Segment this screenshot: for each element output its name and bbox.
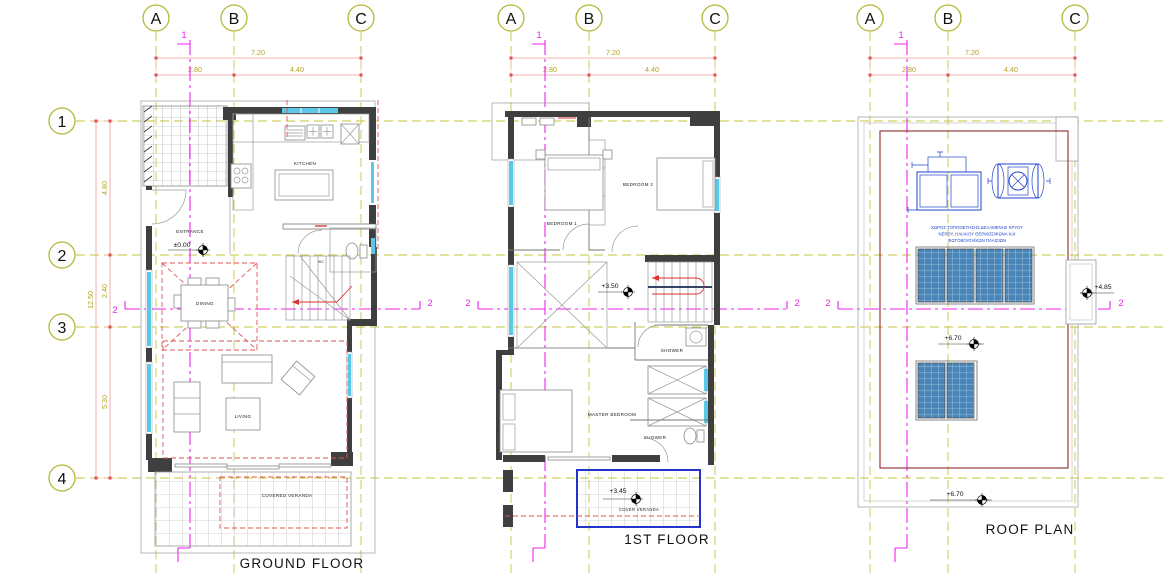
covered-veranda-label: COVERED VERANDA [262,493,313,498]
col-marker-c3: C [1062,5,1088,31]
bedroom1-area: BEDROOM 1 [536,150,612,226]
solar-panel-array-lower [916,361,977,420]
entrance-label: ENTRANCE [176,229,204,234]
svg-text:+4.85: +4.85 [1094,284,1111,291]
svg-text:B: B [943,11,954,28]
sofa [222,355,272,383]
master-bedroom-label: MASTER BEDROOM [588,412,636,417]
dining-area: DINING [162,263,257,350]
col-marker-a3: A [857,5,883,31]
solar-panel-array-upper [916,247,1034,304]
entrance-level: ±0.00 [174,242,191,249]
dim-right-bay-3: 4.40 [1004,65,1018,74]
bedroom1-label: BEDROOM 1 [547,221,577,226]
living-area: LIVING [163,341,347,458]
dim-seg1: 4.80 [100,181,109,195]
master-bed [500,390,572,452]
roof-note-line3: ΦΩΤΟΒΟΛΤΑΪΚΩΝ ΠΛΑΙΣΙΩΝ [948,238,1006,243]
stair-landing-level: +3.50 [601,283,618,290]
row-marker-3: 3 [49,314,75,340]
dim-seg2: 2.40 [100,284,109,298]
master-bedroom-area: MASTER BEDROOM [500,390,636,452]
roof-note-line2: ΝΕΡΟΥ, ΗΛΙΑΚΟΥ ΘΕΡΜΟΣΙΦΩΝΑ ΚΑΙ [938,232,1015,237]
entrance-door [152,190,186,224]
svg-text:B: B [584,11,595,28]
col-marker-a2: A [498,5,524,31]
left-dimensions: 12.50 4.80 2.40 5.30 [86,120,118,480]
dim-total-width-2: 7.20 [606,48,620,57]
floor-plan-drawing: 7.20 2.80 4.40 7.20 2.80 4.40 7.20 2.80 … [0,0,1173,582]
bedroom2-label: BEDROOM 2 [623,182,653,187]
stairs-ground [286,256,352,320]
section-1-label-a: 1 [181,30,186,41]
svg-text:B: B [229,11,240,28]
section-2-label-4: 2 [794,298,799,309]
dim-total-width-1: 7.20 [251,48,265,57]
svg-text:+6.70: +6.70 [944,335,961,342]
roof-level-main: +6.70 [938,335,984,351]
svg-text:A: A [151,11,162,28]
col-marker-c1: C [348,5,374,31]
solar-heater-equipment [908,152,981,213]
col-marker-b3: B [935,5,961,31]
closets [648,366,708,426]
bedroom2-area: BEDROOM 2 [623,158,715,210]
grid-row-bubbles: 1 2 3 4 [49,108,75,491]
col-marker-b2: B [576,5,602,31]
void-area [517,262,607,348]
section-2-label-6: 2 [1118,298,1123,309]
living-label: LIVING [235,414,252,419]
svg-text:1: 1 [58,114,67,131]
bed2 [657,158,715,210]
row-marker-1: 1 [49,108,75,134]
col-marker-c2: C [702,5,728,31]
veranda-level: +3.45 [609,488,626,495]
first-floor-title: 1ST FLOOR [624,532,710,547]
dining-label: DINING [196,301,214,306]
shower-upper-area: SHOWER [638,325,706,353]
kitchen-island [275,170,333,200]
col-marker-a1: A [143,5,169,31]
dim-left-bay-3: 2.80 [902,65,916,74]
stairs-first: +3.50 [598,262,712,322]
roof-plan-title: ROOF PLAN [986,522,1075,537]
section-1-label-b: 1 [536,30,541,41]
dim-total-height: 12.50 [86,291,95,309]
svg-text:C: C [709,11,721,28]
svg-text:C: C [1069,11,1081,28]
svg-text:2: 2 [58,248,67,265]
ground-floor-plan: KITCHEN ENTRANCE ±0.00 WC [141,100,378,571]
section-2-label-1: 2 [112,305,117,316]
grid-column-bubbles: A B C A B C A B C [143,5,1088,31]
section-2-label-2: 2 [427,298,432,309]
top-dimensions: 7.20 2.80 4.40 7.20 2.80 4.40 7.20 2.80 … [155,48,1077,80]
dim-total-width-3: 7.20 [965,48,979,57]
svg-text:+6.70: +6.70 [946,491,963,498]
section-2-label-5: 2 [825,298,830,309]
svg-text:3: 3 [58,320,67,337]
shower-lower-label: SHOWER [644,435,667,440]
svg-text:A: A [865,11,876,28]
shower-upper-label: SHOWER [661,348,684,353]
kitchen-label: KITCHEN [294,161,316,166]
entrance-porch-pergola [143,106,227,186]
ground-floor-title: GROUND FLOOR [240,556,365,571]
veranda-first: +3.45 COVER VERANDA [503,470,700,527]
first-floor-plan: BEDROOM 1 BEDROOM 2 +3.50 SHOWER [492,103,720,547]
wc-label: WC [318,260,325,264]
section-1-label-c: 1 [898,30,903,41]
roof-note-line1: ΧΩΡΟΣ ΤΟΠΟΘΕΤΗΣΗΣ ΔΕΞΑΜΕΝΗΣ ΚΡΥΟΥ [931,225,1023,230]
row-marker-4: 4 [49,465,75,491]
svg-text:C: C [355,11,367,28]
dim-seg3: 5.30 [100,395,109,409]
dim-right-bay-1: 4.40 [290,65,304,74]
architectural-drawing-sheet: 7.20 2.80 4.40 7.20 2.80 4.40 7.20 2.80 … [0,0,1173,582]
kitchen-area: KITCHEN [231,114,376,229]
roof-level-lower: +6.70 [930,491,992,507]
svg-text:4: 4 [58,471,67,488]
bed1 [545,155,603,210]
boiler-tank [988,164,1050,198]
veranda-ground: COVERED VERANDA [155,464,351,546]
col-marker-b1: B [221,5,247,31]
cover-veranda-label: COVER VERANDA [619,507,659,512]
row-marker-2: 2 [49,242,75,268]
section-2-label-3: 2 [465,298,470,309]
dim-right-bay-2: 4.40 [645,65,659,74]
svg-text:A: A [506,11,517,28]
